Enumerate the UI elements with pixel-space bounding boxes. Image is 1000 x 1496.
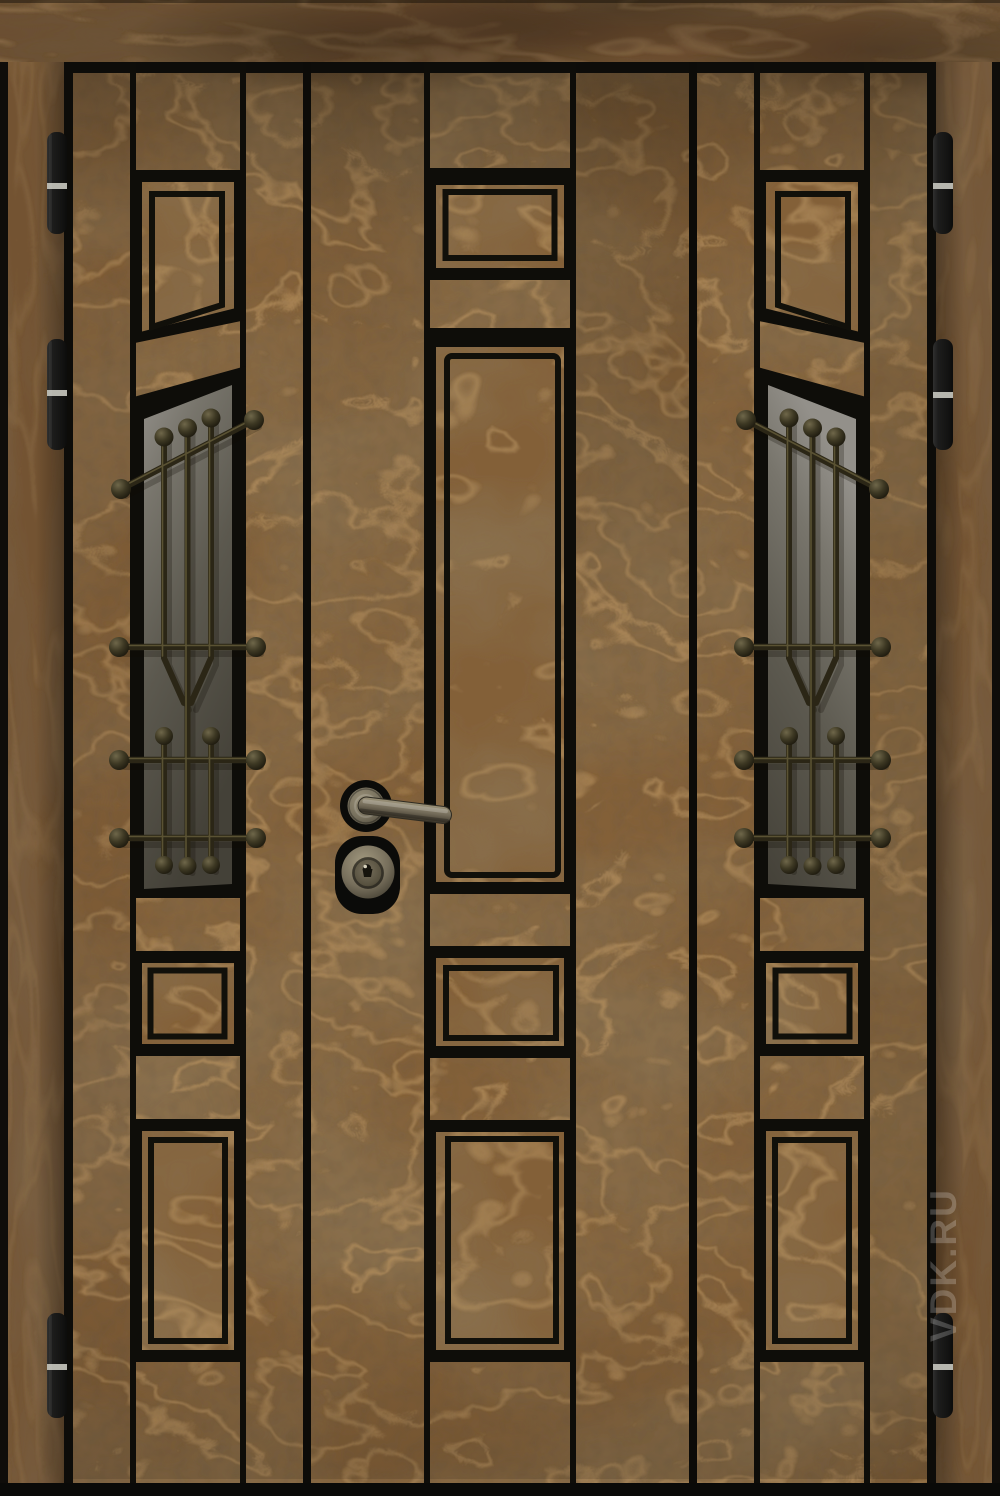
svg-text:VDK.RU: VDK.RU (923, 1188, 964, 1342)
